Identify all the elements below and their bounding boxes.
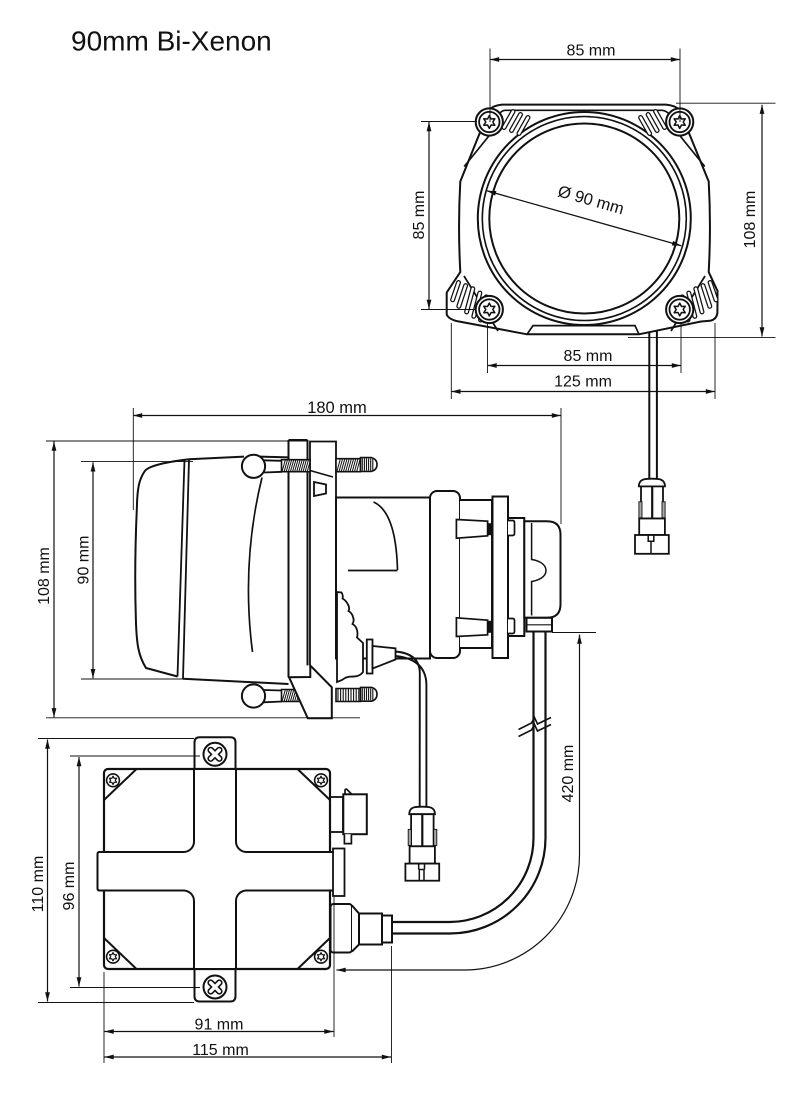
svg-text:180 mm: 180 mm bbox=[307, 399, 367, 417]
svg-text:96 mm: 96 mm bbox=[61, 862, 78, 911]
svg-text:108 mm: 108 mm bbox=[742, 191, 759, 249]
svg-text:85 mm: 85 mm bbox=[564, 348, 613, 365]
svg-text:85 mm: 85 mm bbox=[411, 191, 428, 240]
svg-text:85 mm: 85 mm bbox=[567, 43, 616, 60]
svg-text:420 mm: 420 mm bbox=[560, 745, 577, 803]
svg-text:91 mm: 91 mm bbox=[195, 1017, 244, 1034]
svg-text:108 mm: 108 mm bbox=[36, 547, 53, 605]
svg-text:90mm Bi-Xenon: 90mm Bi-Xenon bbox=[71, 26, 272, 57]
svg-text:115 mm: 115 mm bbox=[192, 1042, 249, 1059]
svg-text:90 mm: 90 mm bbox=[76, 536, 93, 585]
svg-text:110 mm: 110 mm bbox=[30, 856, 47, 913]
svg-text:125 mm: 125 mm bbox=[554, 374, 612, 391]
